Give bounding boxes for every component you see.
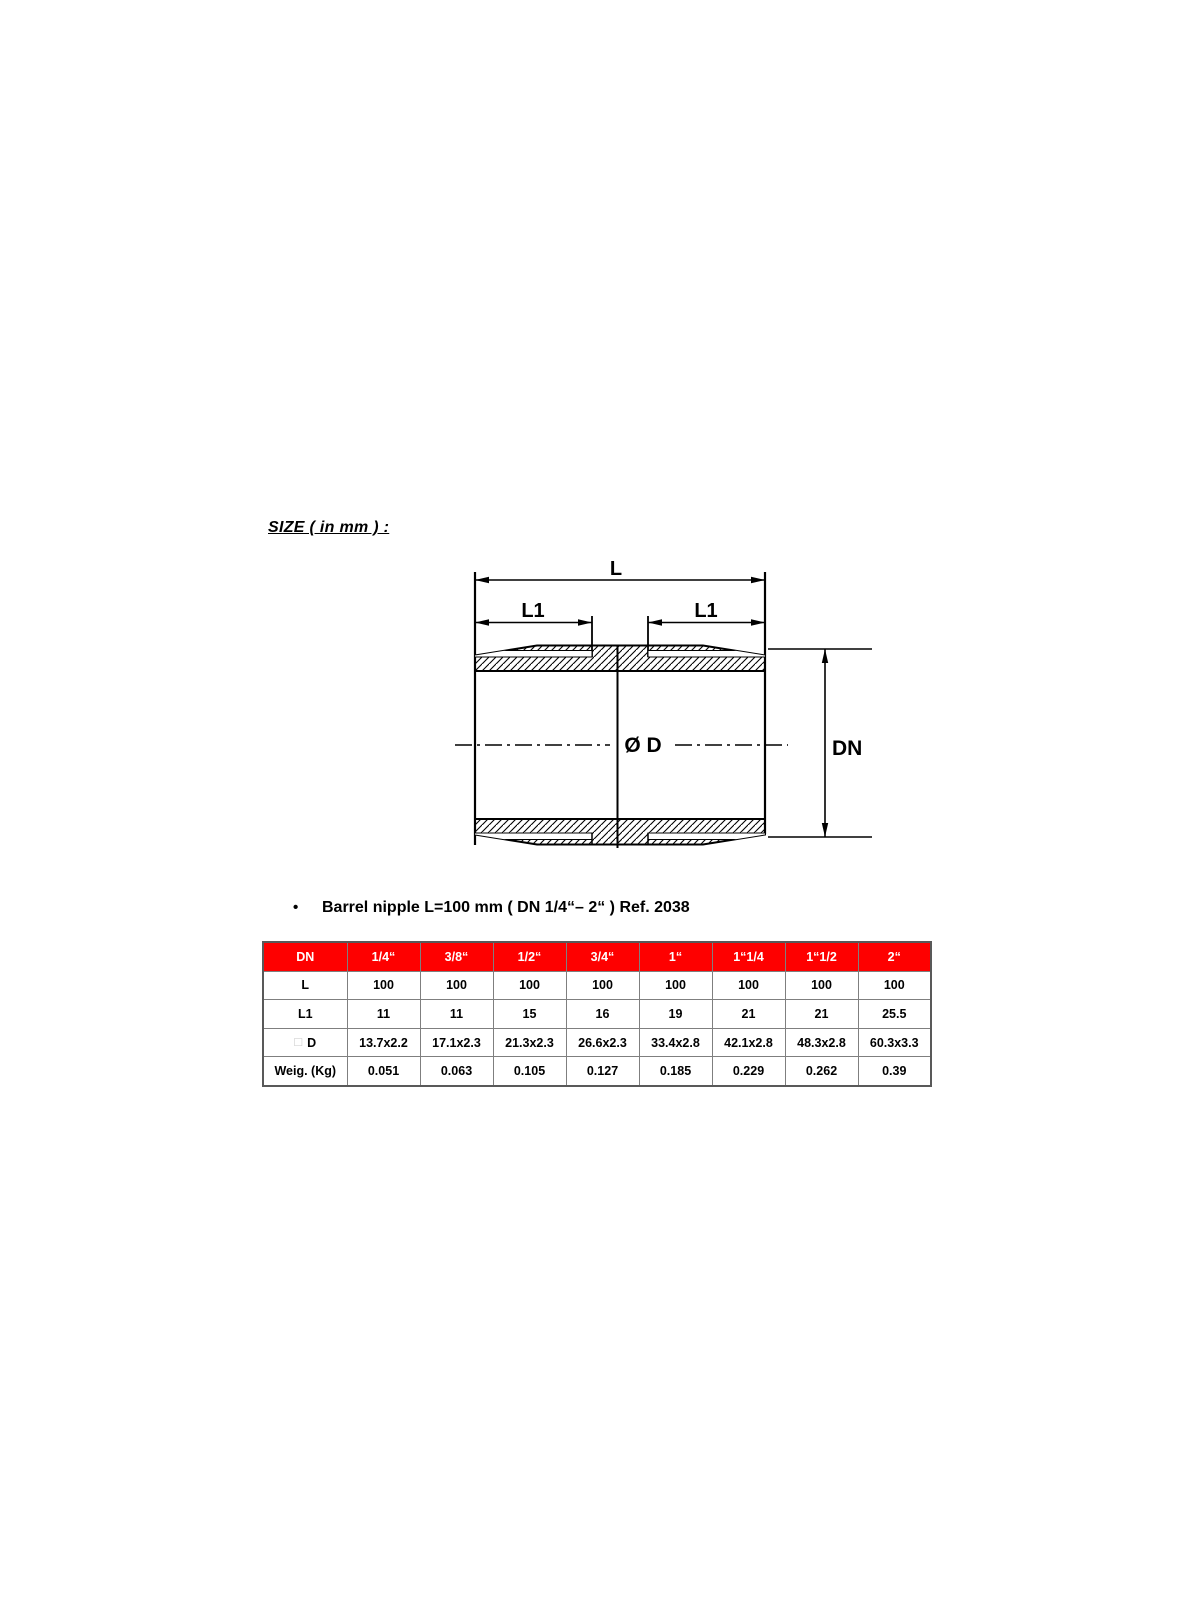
table-header-cell: 3/4“ (566, 942, 639, 971)
table-cell: 17.1x2.3 (420, 1028, 493, 1057)
table-cell: 15 (493, 1000, 566, 1029)
table-cell: 0.127 (566, 1057, 639, 1086)
table-row-label-text: D (307, 1036, 316, 1050)
table-cell: 26.6x2.3 (566, 1028, 639, 1057)
table-cell: 21 (712, 1000, 785, 1029)
table-cell: 100 (566, 971, 639, 1000)
label-l1-left: L1 (521, 600, 544, 622)
table-cell: 0.063 (420, 1057, 493, 1086)
table-cell: 0.105 (493, 1057, 566, 1086)
table-cell: 100 (858, 971, 931, 1000)
table-row-label: L (263, 971, 347, 1000)
label-diameter: Ø D (624, 734, 661, 757)
table-cell: 21 (785, 1000, 858, 1029)
table-row-label: Weig. (Kg) (263, 1057, 347, 1086)
table-header-cell: 3/8“ (420, 942, 493, 971)
table-cell: 19 (639, 1000, 712, 1029)
table-row-label: L1 (263, 1000, 347, 1029)
table-cell: 60.3x3.3 (858, 1028, 931, 1057)
table-cell: 42.1x2.8 (712, 1028, 785, 1057)
table-cell: 48.3x2.8 (785, 1028, 858, 1057)
barrel-nipple-dimension-drawing: L L1 L1 Ø (440, 545, 890, 855)
table-row: Weig. (Kg) 0.051 0.063 0.105 0.127 0.185… (263, 1057, 931, 1086)
table-cell: 11 (420, 1000, 493, 1029)
table-cell: 100 (347, 971, 420, 1000)
table-header-cell: 1“1/2 (785, 942, 858, 971)
table-cell: 16 (566, 1000, 639, 1029)
l-dimension: L (475, 558, 765, 583)
table-cell: 100 (493, 971, 566, 1000)
table-cell: 0.229 (712, 1057, 785, 1086)
table-cell: 100 (712, 971, 785, 1000)
table-header-cell: 1“ (639, 942, 712, 971)
table-header-cell: 1/4“ (347, 942, 420, 971)
dimensions-table: DN 1/4“ 3/8“ 1/2“ 3/4“ 1“ 1“1/4 1“1/2 2“… (262, 941, 932, 1087)
table-row-label: □D (263, 1028, 347, 1057)
table-row: □D 13.7x2.2 17.1x2.3 21.3x2.3 26.6x2.3 3… (263, 1028, 931, 1057)
label-dn: DN (832, 737, 862, 760)
table-cell: 0.262 (785, 1057, 858, 1086)
table-cell: 100 (785, 971, 858, 1000)
table-cell: 21.3x2.3 (493, 1028, 566, 1057)
table-header-row: DN 1/4“ 3/8“ 1/2“ 3/4“ 1“ 1“1/4 1“1/2 2“ (263, 942, 931, 971)
table-cell: 0.39 (858, 1057, 931, 1086)
table-cell: 100 (420, 971, 493, 1000)
table-cell: 100 (639, 971, 712, 1000)
pipe-bottom-wall (473, 819, 767, 845)
dn-dimension: DN (768, 649, 872, 837)
table-cell: 25.5 (858, 1000, 931, 1029)
table-header-cell: 1“1/4 (712, 942, 785, 971)
label-l1-right: L1 (694, 600, 717, 622)
missing-glyph-box: □ (294, 1034, 302, 1049)
table-header-cell: 1/2“ (493, 942, 566, 971)
table-row: L1 11 11 15 16 19 21 21 25.5 (263, 1000, 931, 1029)
table-cell: 0.185 (639, 1057, 712, 1086)
table-header-cell: DN (263, 942, 347, 971)
bullet-item: • Barrel nipple L=100 mm ( DN 1/4“– 2“ )… (293, 898, 690, 917)
table-cell: 11 (347, 1000, 420, 1029)
pipe-top-wall (473, 646, 767, 672)
bullet-icon: • (293, 898, 322, 917)
table-header-cell: 2“ (858, 942, 931, 971)
table-cell: 0.051 (347, 1057, 420, 1086)
page-title: SIZE ( in mm ) : (268, 519, 389, 537)
table-cell: 33.4x2.8 (639, 1028, 712, 1057)
bullet-text: Barrel nipple L=100 mm ( DN 1/4“– 2“ ) R… (322, 898, 690, 917)
bore-centerline: Ø D (455, 734, 788, 757)
table-row: L 100 100 100 100 100 100 100 100 (263, 971, 931, 1000)
label-l: L (610, 558, 622, 580)
table-cell: 13.7x2.2 (347, 1028, 420, 1057)
